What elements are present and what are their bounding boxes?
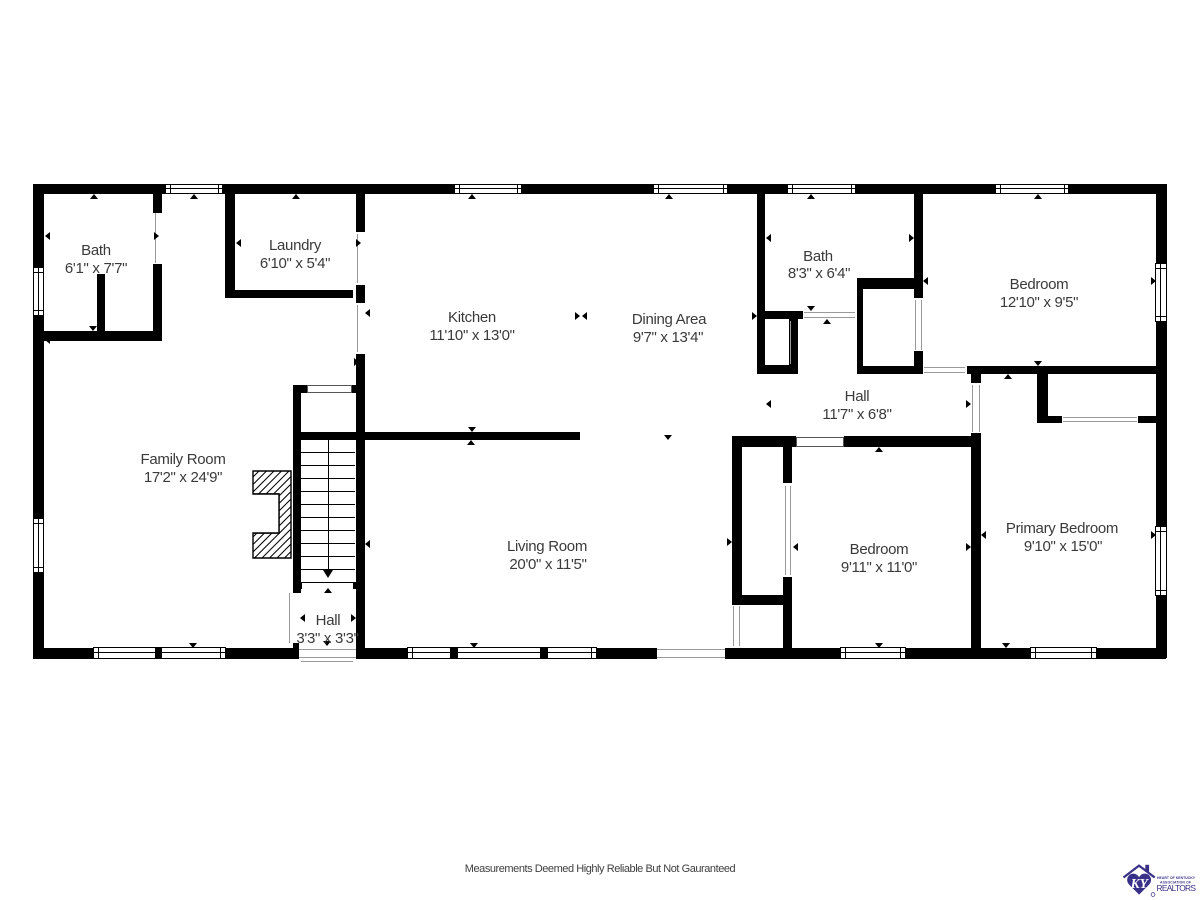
svg-text:HEART OF KENTUCKY: HEART OF KENTUCKY — [1157, 876, 1196, 880]
svg-text:REALTORS: REALTORS — [1157, 883, 1197, 893]
svg-text:KY: KY — [1130, 876, 1150, 891]
